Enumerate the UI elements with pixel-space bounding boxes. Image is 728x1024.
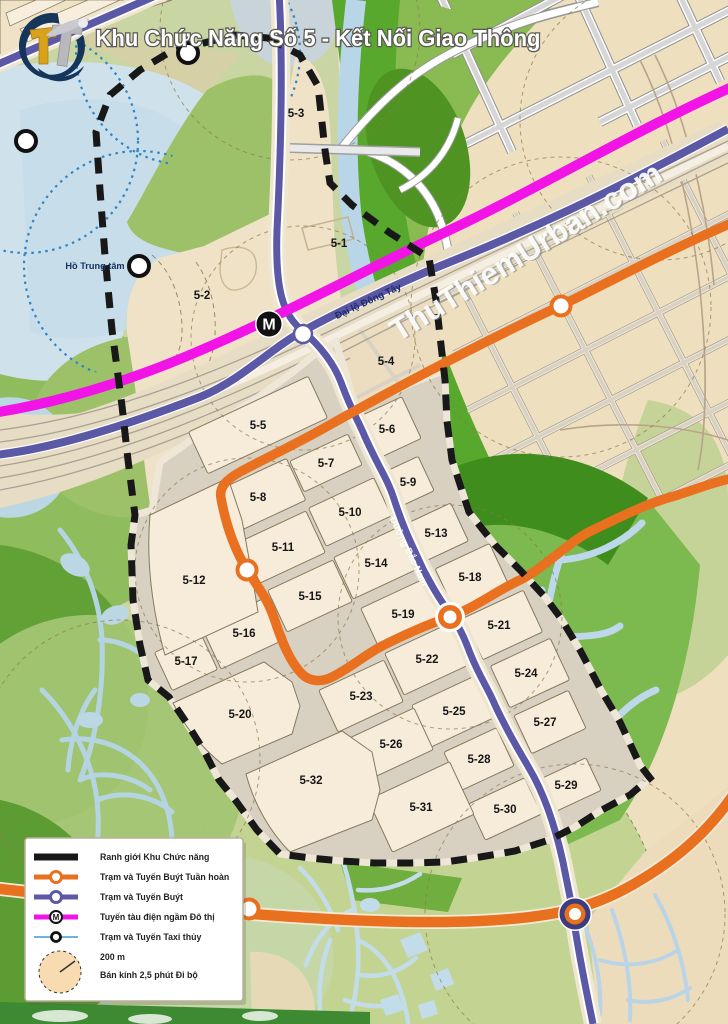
- svg-text:5-12: 5-12: [182, 575, 205, 587]
- svg-text:5-28: 5-28: [467, 754, 491, 766]
- svg-text:5-8: 5-8: [250, 492, 267, 504]
- svg-text:M: M: [53, 913, 60, 922]
- svg-text:5-3: 5-3: [288, 108, 305, 120]
- svg-text:5-9: 5-9: [400, 477, 417, 489]
- svg-text:Trạm và Tuyến Buýt Tuần hoàn: Trạm và Tuyến Buýt Tuần hoàn: [100, 872, 229, 882]
- svg-text:5-24: 5-24: [514, 668, 538, 680]
- svg-text:M: M: [262, 317, 275, 334]
- svg-text:Bán kính 2,5 phút Đi bộ: Bán kính 2,5 phút Đi bộ: [100, 970, 198, 980]
- svg-text:5-17: 5-17: [174, 656, 197, 668]
- svg-text:5-32: 5-32: [299, 775, 322, 787]
- svg-text:5-23: 5-23: [349, 691, 372, 703]
- svg-text:5-25: 5-25: [442, 706, 466, 718]
- svg-text:5-30: 5-30: [493, 804, 516, 816]
- svg-text:5-27: 5-27: [533, 717, 556, 729]
- svg-text:5-13: 5-13: [424, 528, 447, 540]
- svg-text:5-2: 5-2: [194, 290, 211, 302]
- svg-text:5-1: 5-1: [331, 238, 348, 250]
- svg-text:5-5: 5-5: [250, 420, 267, 432]
- svg-text:5-11: 5-11: [272, 542, 295, 554]
- svg-text:5-29: 5-29: [554, 780, 577, 792]
- svg-text:5-14: 5-14: [364, 558, 388, 570]
- svg-text:5-15: 5-15: [298, 591, 322, 603]
- svg-text:5-22: 5-22: [415, 654, 438, 666]
- svg-text:5-26: 5-26: [379, 739, 402, 751]
- svg-text:Ranh giới Khu Chức năng: Ranh giới Khu Chức năng: [100, 852, 209, 862]
- svg-text:Trạm và Tuyến Buýt: Trạm và Tuyến Buýt: [100, 892, 183, 902]
- svg-text:Tuyến tàu điện ngầm Đô thị: Tuyến tàu điện ngầm Đô thị: [100, 912, 215, 922]
- svg-text:5-6: 5-6: [379, 424, 396, 436]
- svg-text:Hồ Trung tâm: Hồ Trung tâm: [65, 261, 124, 271]
- svg-text:5-10: 5-10: [338, 507, 361, 519]
- svg-text:5-4: 5-4: [378, 356, 395, 368]
- svg-text:5-21: 5-21: [487, 620, 511, 632]
- svg-text:5-31: 5-31: [409, 802, 433, 814]
- svg-text:5-20: 5-20: [228, 709, 251, 721]
- svg-text:5-18: 5-18: [458, 572, 482, 584]
- svg-text:5-19: 5-19: [391, 609, 414, 621]
- svg-text:Khu Chức Năng Số 5 - Kết Nối G: Khu Chức Năng Số 5 - Kết Nối Giao Thông: [96, 25, 541, 51]
- svg-text:200 m: 200 m: [100, 952, 125, 962]
- svg-text:5-16: 5-16: [232, 628, 255, 640]
- svg-text:Trạm và Tuyến Taxi thủy: Trạm và Tuyến Taxi thủy: [100, 932, 201, 942]
- svg-text:5-7: 5-7: [318, 458, 335, 470]
